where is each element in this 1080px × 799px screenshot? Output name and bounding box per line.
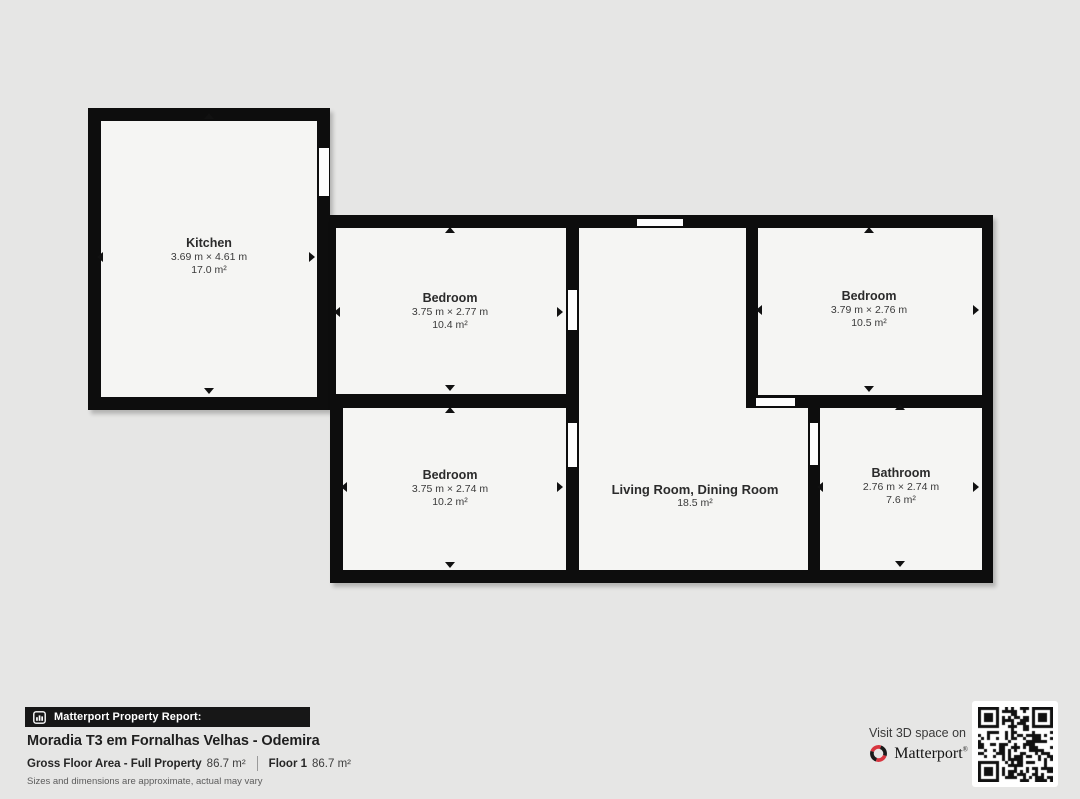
matterport-wordmark: Matterport® xyxy=(894,745,968,763)
room-area: 17.0 m² xyxy=(89,264,329,277)
building-report-icon xyxy=(33,711,46,724)
disclaimer-text: Sizes and dimensions are approximate, ac… xyxy=(27,776,263,787)
entrance-door-opening xyxy=(637,219,683,226)
dimension-arrow-icon xyxy=(445,385,455,391)
room-dimensions: 3.69 m × 4.61 m xyxy=(89,251,329,264)
bedroom-bottom-door-opening xyxy=(568,423,577,467)
dimension-arrow-icon xyxy=(445,562,455,568)
room-name: Bathroom xyxy=(781,466,1021,481)
dimension-arrow-icon xyxy=(204,388,214,394)
property-title: Moradia T3 em Fornalhas Velhas - Odemira xyxy=(27,733,320,749)
gross-floor-area-value: 86.7 m² xyxy=(207,758,246,770)
bedroom-right-door-opening xyxy=(756,398,795,406)
room-label-bedroom-top: Bedroom 3.75 m × 2.77 m 10.4 m² xyxy=(330,291,570,332)
qr-code-pattern xyxy=(978,707,1053,782)
room-label-living: Living Room, Dining Room 18.5 m² xyxy=(575,482,815,510)
dimension-arrow-icon xyxy=(445,407,455,413)
room-name: Bedroom xyxy=(330,468,570,483)
matterport-pinwheel-icon xyxy=(869,744,888,763)
room-dimensions: 2.76 m × 2.74 m xyxy=(781,481,1021,494)
gross-floor-area-label: Gross Floor Area - Full Property xyxy=(27,758,202,770)
room-area: 7.6 m² xyxy=(781,494,1021,507)
room-area: 10.2 m² xyxy=(330,496,570,509)
report-banner: Matterport Property Report: xyxy=(25,707,310,727)
area-stats: Gross Floor Area - Full Property 86.7 m²… xyxy=(27,756,351,771)
bathroom-door-opening xyxy=(810,423,818,465)
room-dimensions: 3.79 m × 2.76 m xyxy=(749,304,989,317)
report-banner-label: Matterport Property Report: xyxy=(54,711,202,723)
room-label-kitchen: Kitchen 3.69 m × 4.61 m 17.0 m² xyxy=(89,236,329,277)
dimension-arrow-icon xyxy=(445,227,455,233)
matterport-brand: Matterport® xyxy=(869,744,968,763)
room-dimensions: 3.75 m × 2.74 m xyxy=(330,483,570,496)
room-name: Bedroom xyxy=(749,289,989,304)
room-name: Kitchen xyxy=(89,236,329,251)
dimension-arrow-icon xyxy=(864,227,874,233)
kitchen-window xyxy=(319,148,329,196)
floor-value: 86.7 m² xyxy=(312,758,351,770)
room-label-bedroom-bottom: Bedroom 3.75 m × 2.74 m 10.2 m² xyxy=(330,468,570,509)
room-name: Bedroom xyxy=(330,291,570,306)
room-area: 18.5 m² xyxy=(575,497,815,510)
visit-3d-space-text: Visit 3D space on xyxy=(869,726,966,740)
dimension-arrow-icon xyxy=(864,386,874,392)
room-area: 10.4 m² xyxy=(330,319,570,332)
dimension-arrow-icon xyxy=(204,113,214,119)
divider xyxy=(257,756,258,771)
qr-code xyxy=(972,701,1058,787)
floor-label: Floor 1 xyxy=(269,758,307,770)
room-name: Living Room, Dining Room xyxy=(575,482,815,497)
room-dimensions: 3.75 m × 2.77 m xyxy=(330,306,570,319)
room-label-bathroom: Bathroom 2.76 m × 2.74 m 7.6 m² xyxy=(781,466,1021,507)
dimension-arrow-icon xyxy=(895,404,905,410)
floor-plan: Kitchen 3.69 m × 4.61 m 17.0 m² Bedroom … xyxy=(0,0,1080,799)
dimension-arrow-icon xyxy=(895,561,905,567)
room-area: 10.5 m² xyxy=(749,317,989,330)
room-label-bedroom-right: Bedroom 3.79 m × 2.76 m 10.5 m² xyxy=(749,289,989,330)
